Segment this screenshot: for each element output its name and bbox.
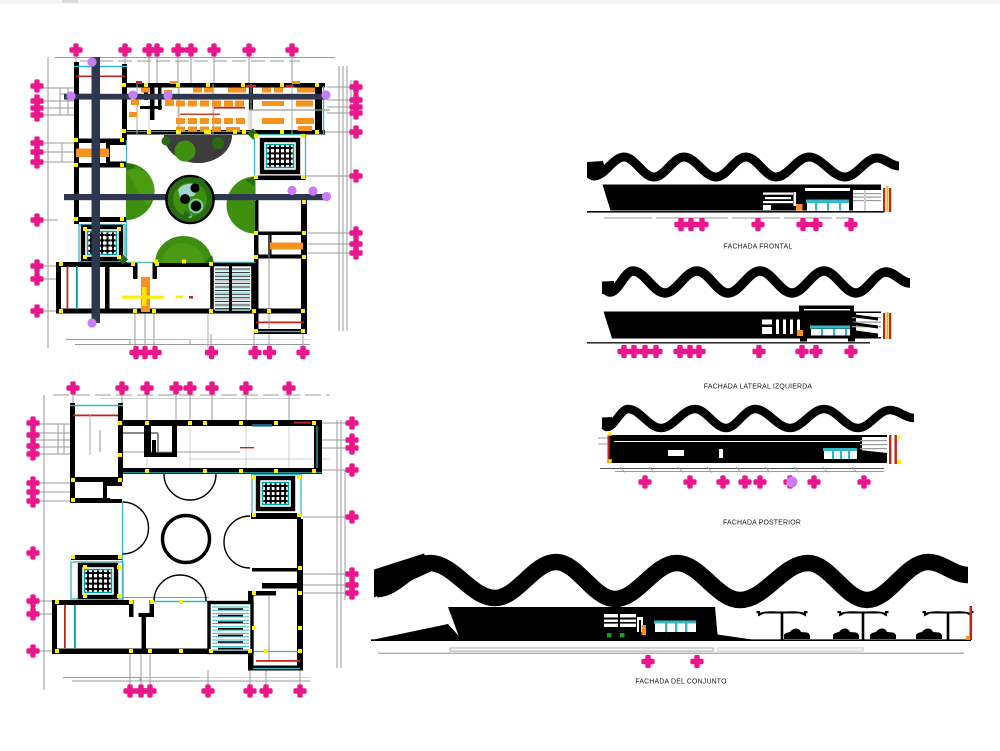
svg-text:FACHADA FRONTAL: FACHADA FRONTAL <box>724 244 793 251</box>
svg-text:FACHADA DEL CONJUNTO: FACHADA DEL CONJUNTO <box>635 679 727 686</box>
svg-text:FACHADA LATERAL IZQUIERDA: FACHADA LATERAL IZQUIERDA <box>704 384 813 391</box>
svg-text:FACHADA POSTERIOR: FACHADA POSTERIOR <box>723 520 801 527</box>
